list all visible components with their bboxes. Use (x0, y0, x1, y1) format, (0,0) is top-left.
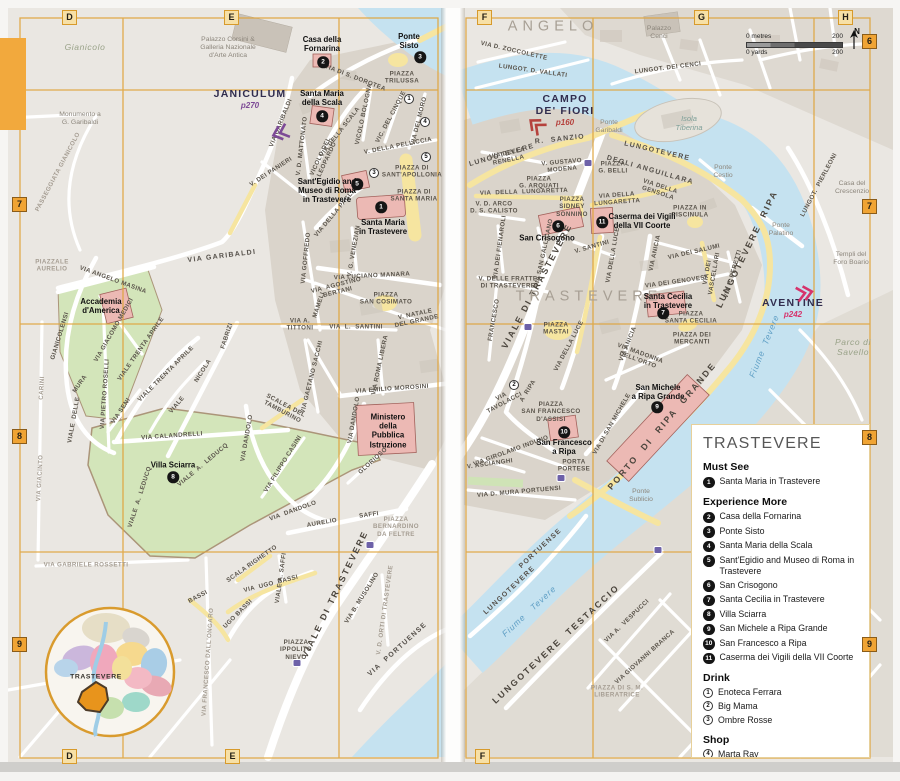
grid-tab-G-top: G (694, 10, 709, 25)
grid-tab-F-bottom: F (475, 749, 490, 764)
grid-tab-F-top: F (477, 10, 492, 25)
grid-tab-8-left: 8 (12, 429, 27, 444)
grid-tab-9-left: 9 (12, 637, 27, 652)
grid-tab-9-right: 9 (862, 637, 877, 652)
grid-tab-6-right: 6 (862, 34, 877, 49)
grid-tab-7-left: 7 (12, 197, 27, 212)
grid-tab-H-top: H (838, 10, 853, 25)
grid-tab-D-top: D (62, 10, 77, 25)
grid-tab-E-bottom: E (225, 749, 240, 764)
map-page: GianicoloPalazzo Corsini & Galleria Nazi… (0, 0, 900, 781)
grid-tab-8-right: 8 (862, 430, 877, 445)
grid-tab-D-bottom: D (62, 749, 77, 764)
grid-tab-E-top: E (224, 10, 239, 25)
grid-tabs: DEFGHDEF7896789 (0, 0, 900, 781)
grid-tab-7-right: 7 (862, 199, 877, 214)
